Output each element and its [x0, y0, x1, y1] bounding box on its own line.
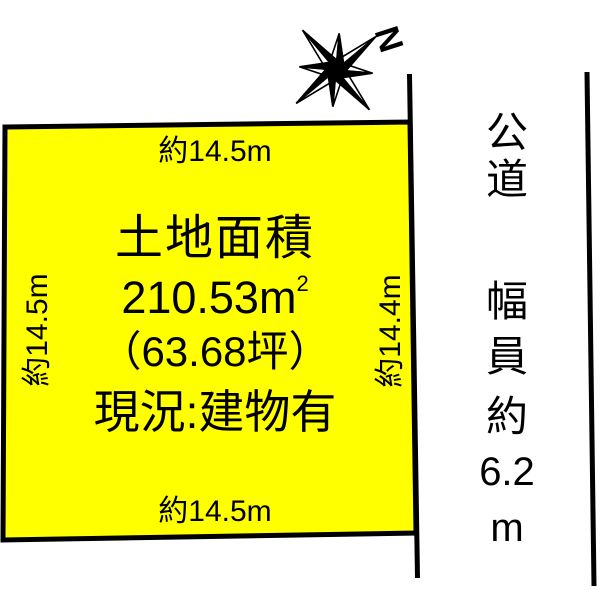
land-area-value-superscript: 2 [296, 271, 308, 296]
road-caption-char: 6.2 [475, 452, 539, 492]
dimension-bottom-label: 約14.5m [15, 496, 415, 528]
dimension-top-label: 約14.5m [15, 136, 415, 168]
road-caption-char: m [475, 508, 539, 548]
road-boundary-east-line [587, 72, 594, 586]
land-area-tsubo: （63.68坪） [15, 330, 415, 374]
road-caption-char: 員 [475, 336, 539, 378]
road-caption-char: 約 [475, 396, 539, 438]
land-plot-diagram: N 約14.5m 約14.5m 約14.4m 約14.5m 土地面積 210.5… [0, 0, 600, 590]
road-caption-char: 公 [475, 112, 539, 154]
land-area-value: 210.53m2 [15, 272, 415, 321]
land-area-value-number: 210.53m [121, 272, 296, 323]
land-area-title: 土地面積 [15, 214, 415, 264]
road-caption-char: 道 [475, 159, 539, 201]
road-caption-char: 幅 [475, 281, 539, 323]
current-status-label: 現況:建物有 [15, 388, 415, 436]
